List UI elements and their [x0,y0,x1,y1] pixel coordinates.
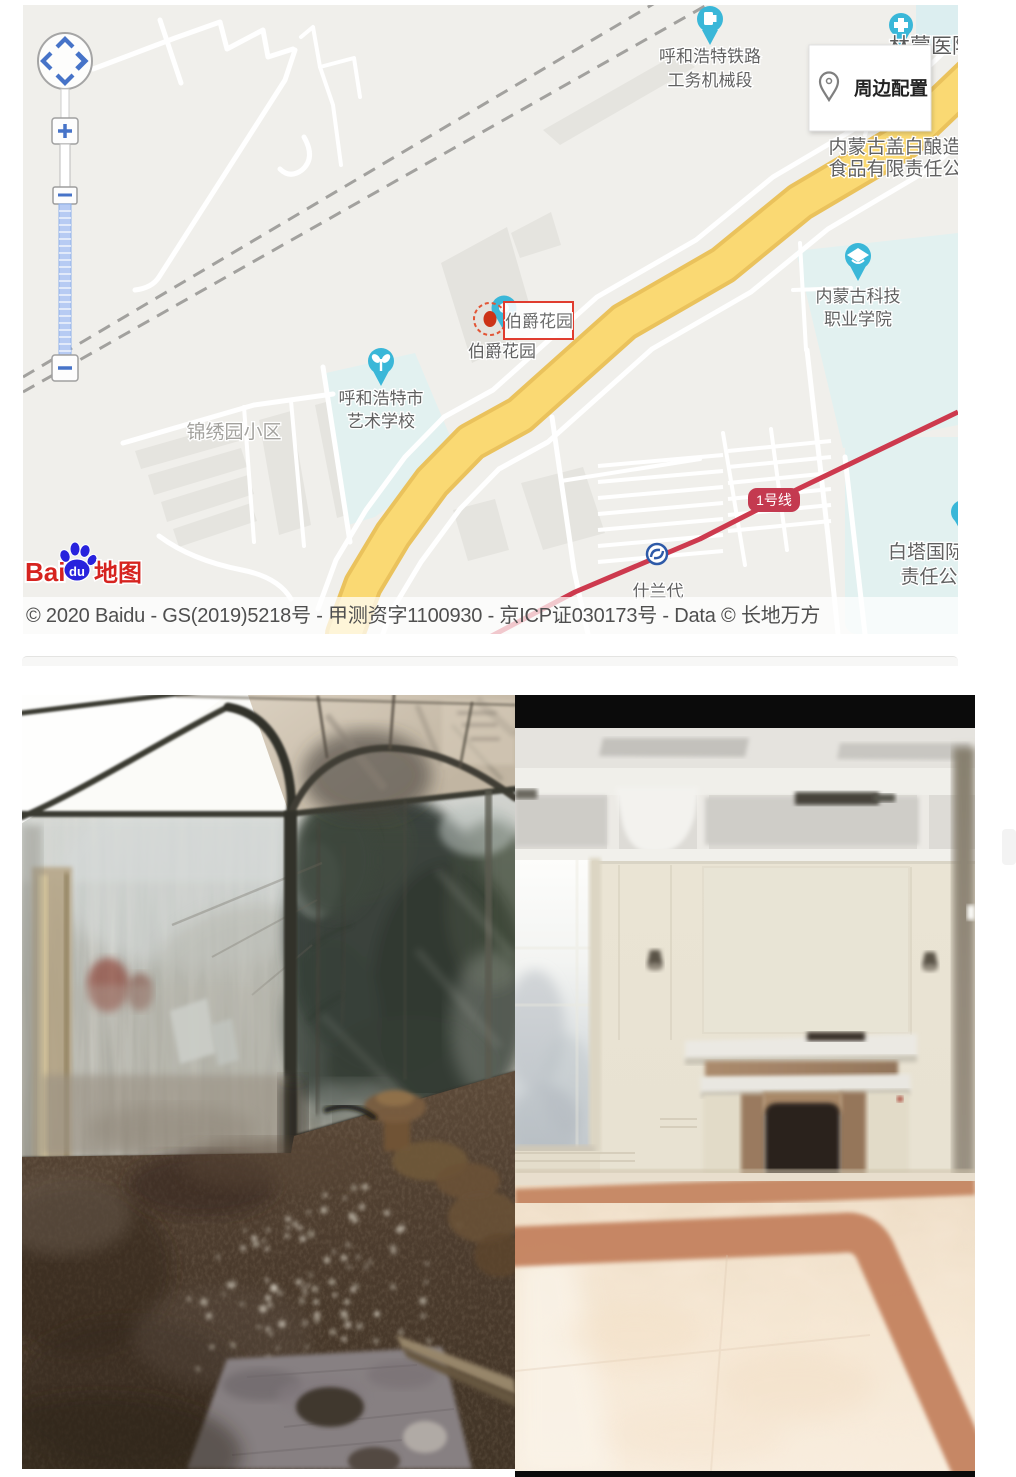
svg-text:Bai: Bai [25,557,65,587]
svg-text:1号线: 1号线 [756,492,792,508]
svg-text:职业学院: 职业学院 [824,310,892,329]
svg-text:食品有限责任公: 食品有限责任公 [828,158,958,180]
svg-text:艺术学校: 艺术学校 [347,412,415,431]
svg-text:责任公: 责任公 [900,566,957,588]
svg-text:呼和浩特铁路: 呼和浩特铁路 [659,47,761,66]
svg-text:内蒙古盖白酿造: 内蒙古盖白酿造 [828,136,958,158]
svg-text:地图: 地图 [94,560,142,587]
svg-text:呼和浩特市: 呼和浩特市 [339,389,424,408]
svg-text:周边配置: 周边配置 [854,78,928,99]
svg-text:锦绣园小区: 锦绣园小区 [186,421,281,443]
svg-text:内蒙古科技: 内蒙古科技 [816,287,901,306]
svg-text:白塔国际: 白塔国际 [888,541,958,563]
svg-text:工务机械段: 工务机械段 [668,71,753,90]
svg-text:伯爵花园: 伯爵花园 [505,312,573,331]
svg-text:伯爵花园: 伯爵花园 [468,342,536,361]
svg-text:du: du [69,564,85,579]
svg-text:© 2020 Baidu - GS(2019)5218号 -: © 2020 Baidu - GS(2019)5218号 - 甲测资字11009… [26,604,820,627]
